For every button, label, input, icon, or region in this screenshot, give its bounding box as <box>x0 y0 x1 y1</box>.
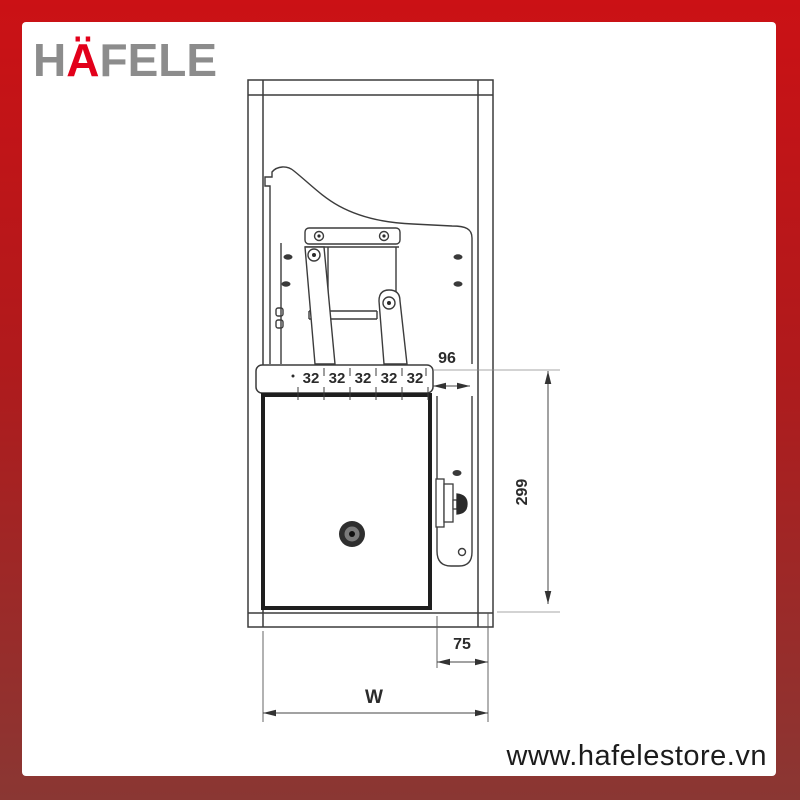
arrow-right-icon <box>475 710 488 716</box>
dim-w-label: W <box>365 687 383 708</box>
drawer-front <box>263 395 430 608</box>
latch-mechanism <box>436 479 467 527</box>
mechanism-side-plate <box>265 167 472 364</box>
dimension-75: 75 <box>437 616 488 668</box>
latch-knob <box>457 494 467 514</box>
arrow-right-icon <box>457 383 470 389</box>
arrow-down-icon <box>545 591 552 604</box>
slot-hole <box>282 281 291 286</box>
lift-linkage <box>305 228 407 364</box>
arrow-up-icon <box>545 371 552 384</box>
technical-drawing: 32 32 32 32 32 <box>0 0 800 800</box>
lift-arm-left <box>305 247 335 364</box>
pitch-label: 32 <box>355 370 372 387</box>
slot-hole <box>284 254 293 259</box>
arrow-left-icon <box>437 659 450 665</box>
slot-hole <box>453 470 462 476</box>
pitch-label: 32 <box>381 370 398 387</box>
dimension-96: 96 <box>433 350 560 389</box>
pitch-label: 32 <box>329 370 346 387</box>
dim-96-label: 96 <box>438 350 456 367</box>
arrow-left-icon <box>263 710 276 716</box>
arrow-right-icon <box>475 659 488 665</box>
slot-hole <box>454 281 463 286</box>
pitch-rail: 32 32 32 32 32 <box>256 365 433 393</box>
screw-hole <box>459 549 466 556</box>
store-website-text: www.hafelestore.vn <box>507 740 767 773</box>
dim-299-label: 299 <box>514 479 531 506</box>
dimension-width: W <box>263 613 488 722</box>
product-image-card: HÄFELE <box>22 22 776 776</box>
arrow-left-icon <box>433 383 446 389</box>
pitch-label: 32 <box>407 370 424 387</box>
pitch-label: 32 <box>303 370 320 387</box>
dimension-299: 299 <box>497 371 560 612</box>
slot-hole <box>454 254 463 259</box>
dim-75-label: 75 <box>453 636 471 653</box>
